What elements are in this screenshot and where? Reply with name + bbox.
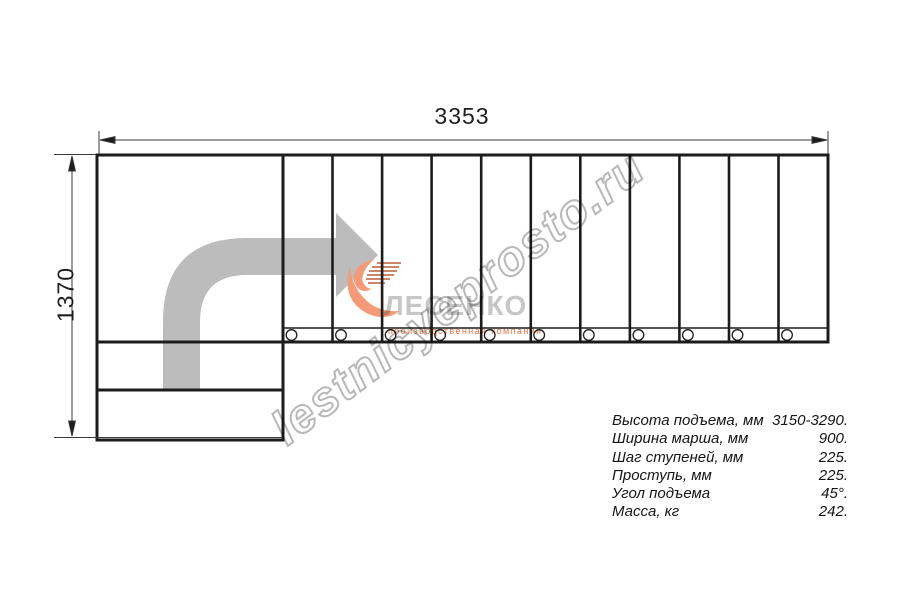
spec-label: Ширина марша, мм <box>612 430 748 448</box>
spec-value: 3150-3290. <box>772 412 848 430</box>
spec-row-mass: Масса, кг 242. <box>612 503 848 521</box>
spec-table: Высота подъема, мм 3150-3290. Ширина мар… <box>612 412 848 522</box>
dimension-width-label: 3353 <box>412 103 512 130</box>
spec-row-step-pitch: Шаг ступеней, мм 225. <box>612 449 848 467</box>
spec-row-angle: Угол подъема 45°. <box>612 485 848 503</box>
spec-value: 225. <box>819 449 848 467</box>
spec-label: Угол подъема <box>612 485 710 503</box>
spec-label: Шаг ступеней, мм <box>612 449 743 467</box>
spec-value: 225. <box>819 467 848 485</box>
spec-label: Масса, кг <box>612 503 679 521</box>
spec-row-height: Высота подъема, мм 3150-3290. <box>612 412 848 430</box>
spec-value: 242. <box>819 503 848 521</box>
spec-value: 900. <box>819 430 848 448</box>
spec-label: Проступь, мм <box>612 467 712 485</box>
spec-label: Высота подъема, мм <box>612 412 764 430</box>
dimension-height-label: 1370 <box>53 245 80 345</box>
spec-value: 45°. <box>821 485 848 503</box>
spec-row-flight-width: Ширина марша, мм 900. <box>612 430 848 448</box>
stair-drawing-page: { "drawing": { "dim_width_label": "3353"… <box>0 0 900 600</box>
spec-row-tread: Проступь, мм 225. <box>612 467 848 485</box>
